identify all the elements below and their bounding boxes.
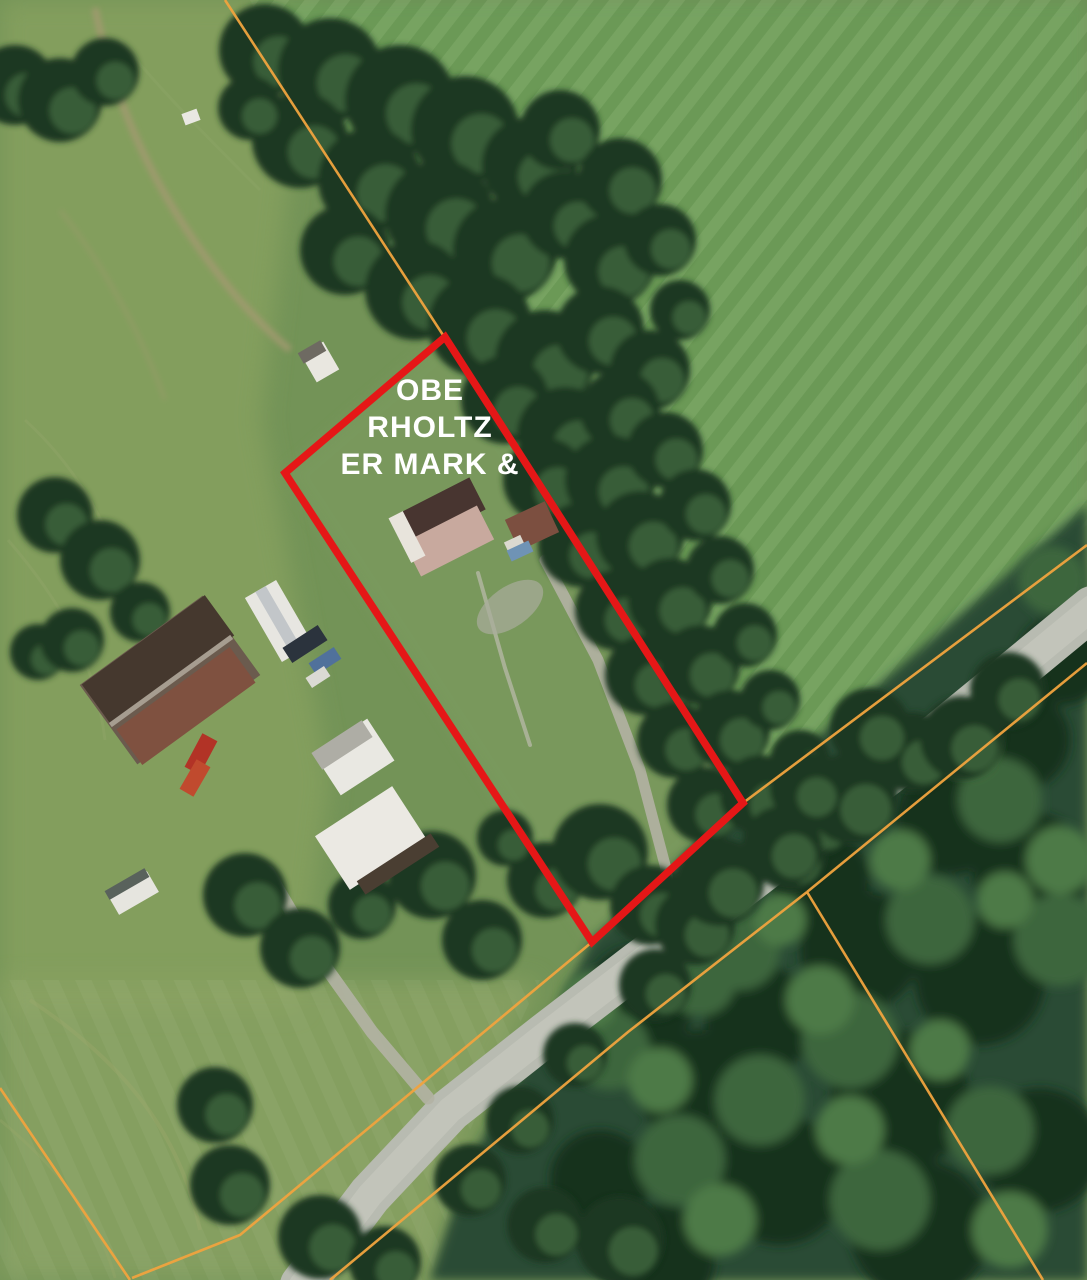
tree-highlight [567, 1045, 602, 1080]
map-canvas[interactable]: OBE RHOLTZ ER MARK & [0, 0, 1087, 1280]
tree-highlight [242, 98, 277, 133]
tree-highlight [797, 777, 837, 817]
tree-highlight [651, 229, 691, 269]
tree-highlight [290, 936, 334, 980]
tree-highlight [64, 630, 99, 665]
forest-canopy [977, 872, 1033, 928]
tree-highlight [220, 1173, 264, 1217]
tree-highlight [536, 1214, 578, 1256]
tree-highlight [712, 560, 749, 597]
forest-canopy [830, 1150, 930, 1250]
tree-highlight [763, 691, 796, 724]
forest-canopy [870, 830, 930, 890]
tree-highlight [673, 301, 706, 334]
tree-highlight [952, 725, 998, 771]
tree-highlight [472, 928, 516, 972]
tree-highlight [461, 1169, 501, 1209]
tree-highlight [772, 834, 816, 878]
tree-highlight [737, 625, 772, 660]
forest-canopy [910, 1020, 970, 1080]
tree-highlight [709, 869, 757, 917]
forest-canopy [684, 1184, 756, 1256]
forest-canopy [972, 1192, 1048, 1268]
tree-highlight [512, 1110, 549, 1147]
tree-highlight [609, 1227, 657, 1275]
forest-canopy [754, 894, 806, 946]
forest-canopy [628, 1048, 692, 1112]
forest-canopy [715, 1055, 805, 1145]
tree-highlight [646, 974, 686, 1014]
tree-highlight [686, 494, 726, 534]
tree-highlight [97, 62, 134, 99]
tree-highlight [206, 1094, 248, 1136]
tree-highlight [999, 679, 1041, 721]
aerial-imagery [0, 0, 1087, 1280]
forest-canopy [816, 1096, 884, 1164]
tree-highlight [841, 784, 892, 835]
forest-canopy [946, 1086, 1034, 1174]
tree-highlight [860, 716, 904, 760]
tree-highlight [354, 895, 391, 932]
tree-highlight [421, 862, 469, 910]
forest-canopy [786, 966, 854, 1034]
